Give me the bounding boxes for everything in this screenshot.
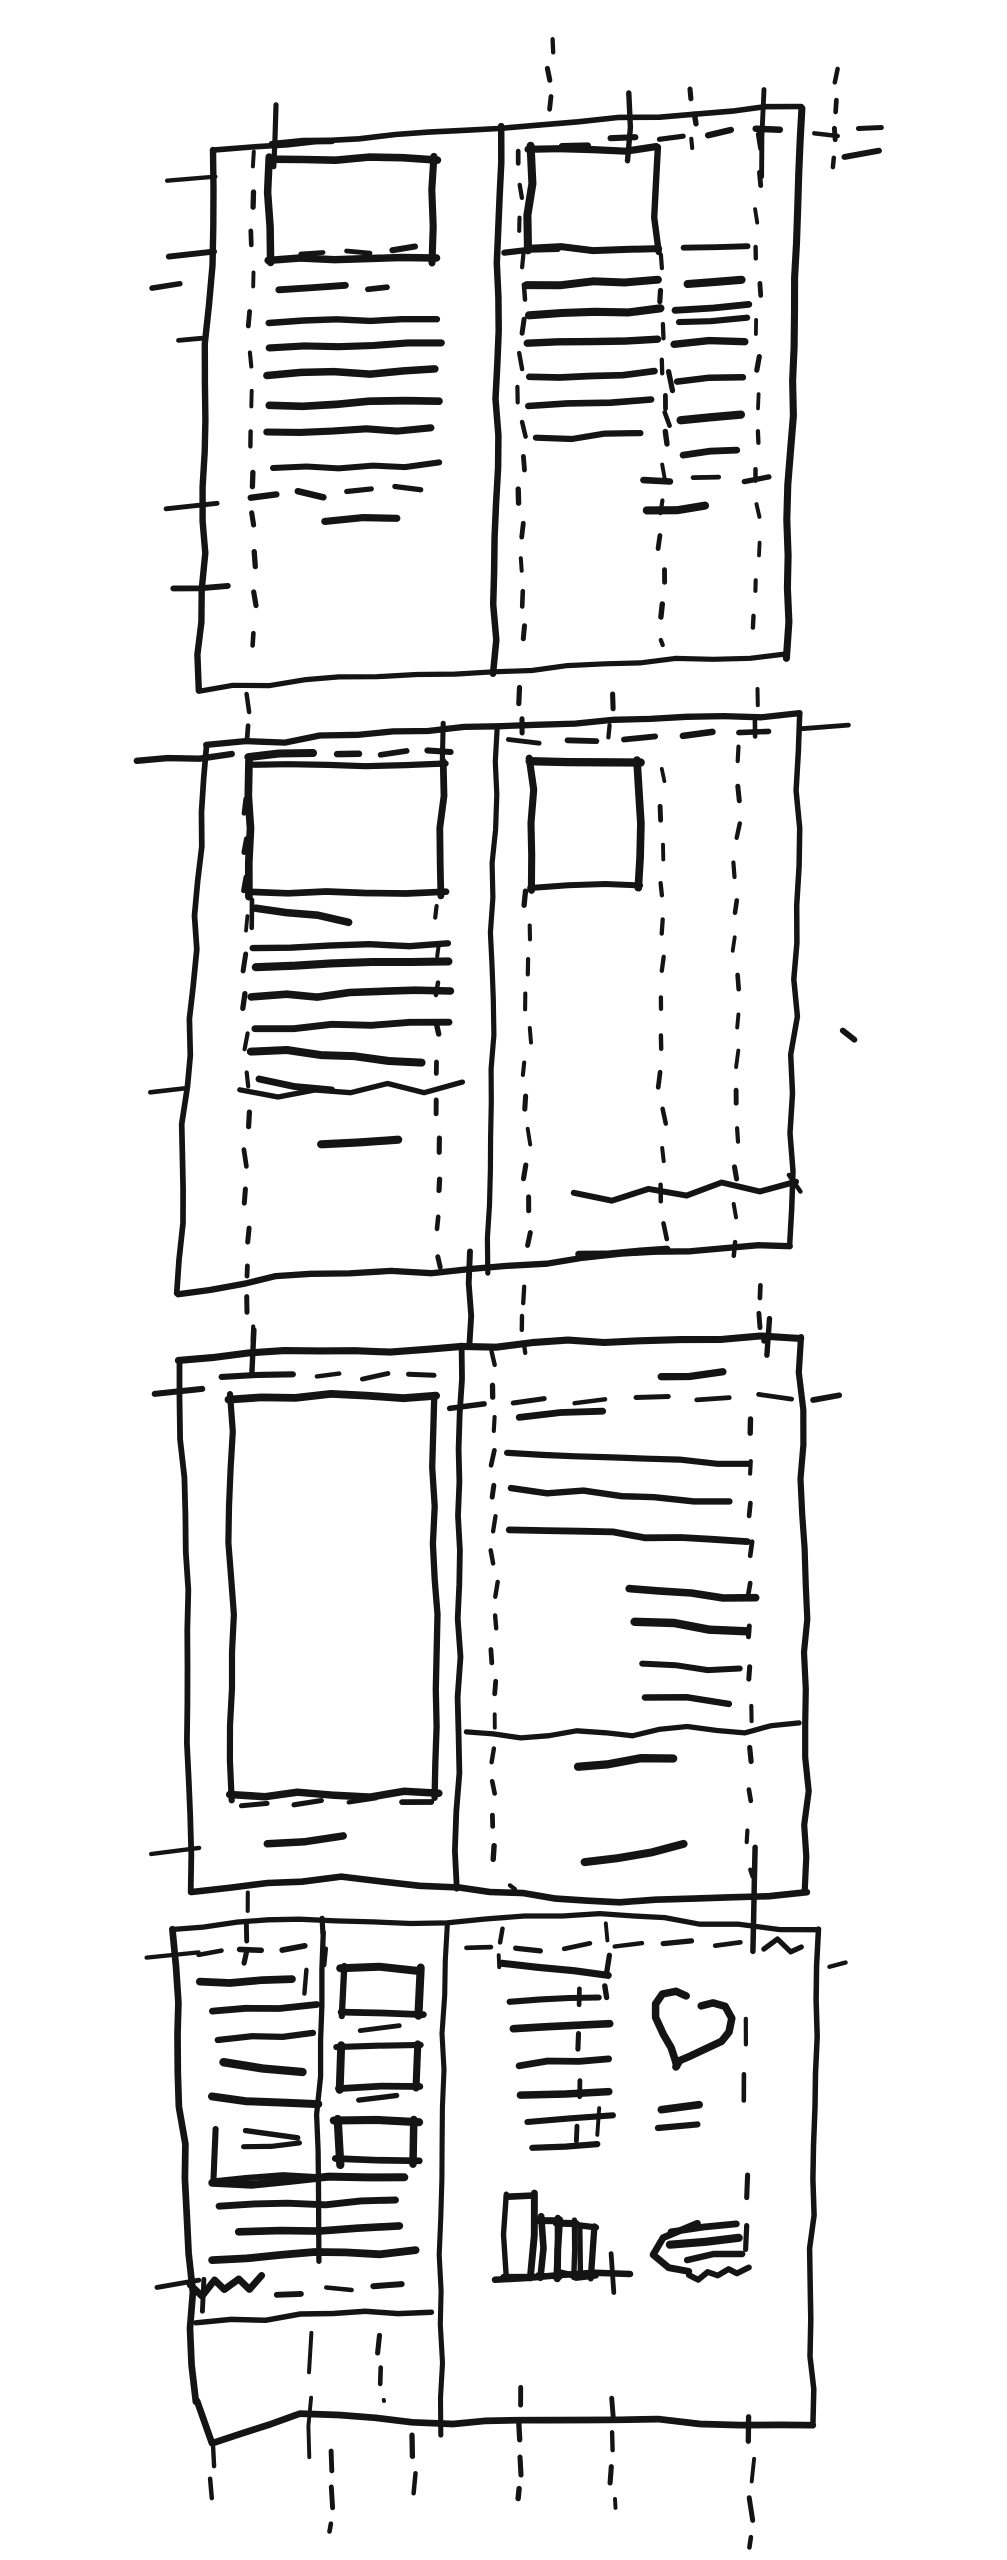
sketch-page <box>0 0 1007 2560</box>
spread-1-two-column-article <box>152 90 881 692</box>
wireframe-sketch-canvas <box>0 0 1007 2560</box>
spread-3-full-bleed-image <box>151 1319 839 1903</box>
spread-4-mixed-media <box>147 1914 846 2444</box>
spread-2-feature-opener <box>137 713 855 1294</box>
